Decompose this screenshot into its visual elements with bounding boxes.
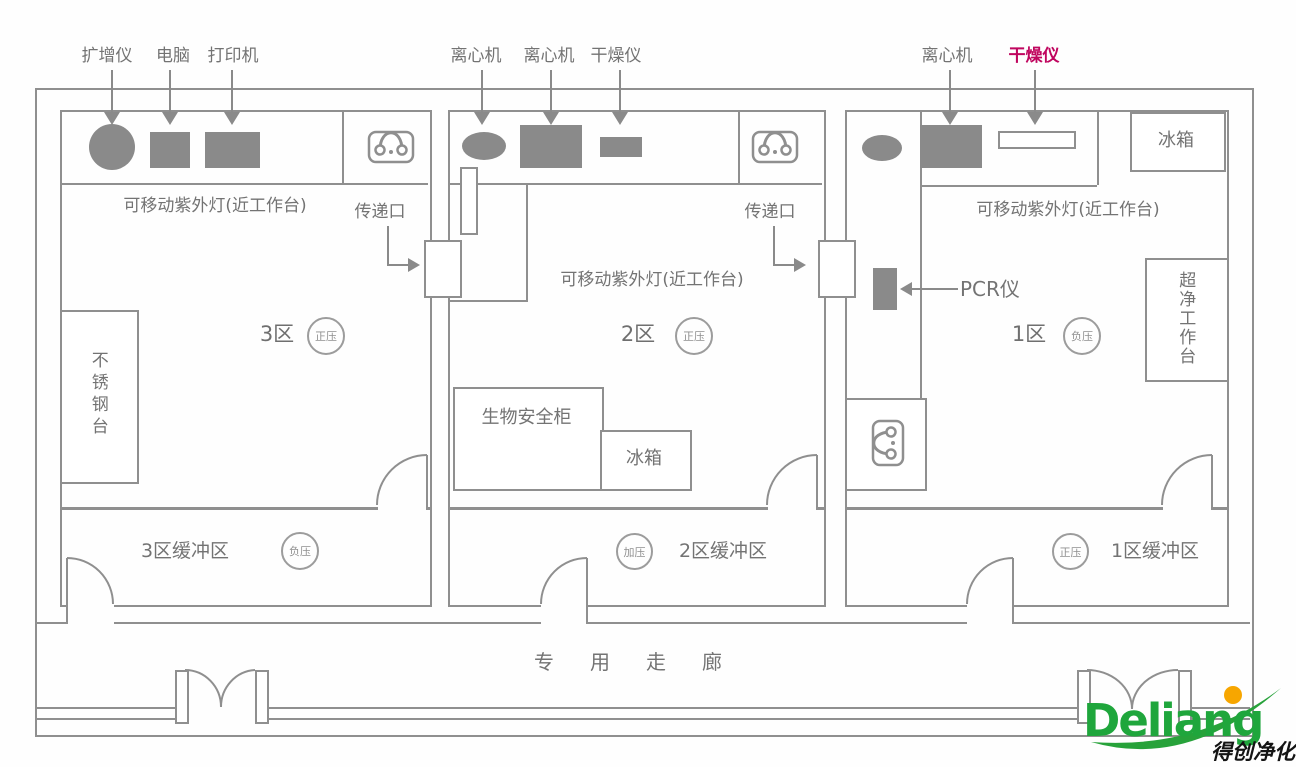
- pcr-lab-floor-plan: 可移动紫外灯(近工作台) 不锈钢台 3区 正压 传递口 可移动紫外灯(近工作台)…: [0, 0, 1296, 767]
- zone2-side-bench-h: [448, 300, 528, 302]
- zone1-fridge: 冰箱: [1130, 112, 1226, 172]
- zone1-pcr-arrowhead: [900, 282, 912, 296]
- zone3-printer: [205, 132, 260, 168]
- zone1-arrow-1: [949, 70, 951, 114]
- zone2-wall-unit: [460, 167, 478, 235]
- buffer1-door-opening: [967, 600, 1014, 626]
- zone2-centrifuge-2-label: 离心机: [519, 46, 579, 66]
- zone2-dryer-label: 干燥仪: [586, 46, 646, 66]
- zone2-centrifuge-1-label: 离心机: [446, 46, 506, 66]
- zone3-computer: [150, 132, 190, 168]
- zone1-dryer: [998, 131, 1076, 149]
- zone3-pressure-badge: 正压: [307, 317, 345, 355]
- zone3-steel-table-label: 不锈钢台: [62, 312, 133, 478]
- pass-window-2-arrowhead: [794, 258, 806, 272]
- zone2-side-bench-v: [526, 183, 528, 302]
- zone2-arrowhead-2: [543, 112, 559, 125]
- zone2-arrowhead-3: [612, 112, 628, 125]
- zone2-biosafety-cabinet: 生物安全柜: [453, 387, 604, 491]
- zone2-biosafety-cabinet-label: 生物安全柜: [455, 407, 598, 429]
- zone1-dryer-label: 干燥仪: [1004, 46, 1064, 66]
- zone2-fridge-label: 冰箱: [602, 448, 686, 470]
- zone2-bench-divider: [738, 110, 740, 183]
- zone2-arrow-3: [619, 70, 621, 114]
- pass-window-2-label: 传递口: [740, 202, 800, 222]
- zone1-bench-side: [1097, 110, 1099, 185]
- buffer3-door-opening: [67, 600, 114, 626]
- buffer2-door-opening: [541, 600, 588, 626]
- zone3-arrow-2: [169, 70, 171, 114]
- buffer2-pressure-text: 加压: [624, 544, 646, 560]
- deliang-logo: Deliang 得创净化: [1083, 680, 1295, 766]
- zone3-arrowhead-3: [224, 112, 240, 125]
- zone3-bench-edge: [60, 183, 428, 185]
- zone2-centrifuge-1: [462, 132, 506, 160]
- zone1-arrowhead-2: [1027, 112, 1043, 125]
- zone1-pcr-arrow: [912, 288, 958, 290]
- buffer3-label: 3区缓冲区: [120, 540, 250, 563]
- zone1-sink-room: [845, 398, 927, 491]
- zone1-clean-bench: 超净工作台: [1145, 258, 1229, 382]
- zone2-fridge: 冰箱: [600, 430, 692, 491]
- zone3-arrowhead-1: [104, 112, 120, 125]
- zone3-arrowhead-2: [162, 112, 178, 125]
- zone2-uv-label: 可移动紫外灯(近工作台): [532, 270, 772, 290]
- buffer1-pressure-badge: 正压: [1052, 533, 1089, 570]
- zone1-pressure-text: 负压: [1071, 328, 1093, 344]
- main-door-1-opening: [176, 705, 264, 722]
- zone3-bench-divider: [342, 110, 344, 183]
- zone3-amplifier: [89, 124, 135, 170]
- zone1-centrifuge: [920, 125, 982, 168]
- zone1-door-opening: [1163, 500, 1213, 512]
- zone3-uv-label: 可移动紫外灯(近工作台): [95, 196, 335, 216]
- buffer2-pressure-badge: 加压: [616, 533, 653, 570]
- buffer1-label: 1区缓冲区: [1090, 540, 1220, 563]
- zone2-arrow-1: [481, 70, 483, 114]
- zone1-arrowhead-1: [942, 112, 958, 125]
- zone2-door-opening: [768, 500, 818, 512]
- zone3-steel-table: 不锈钢台: [60, 310, 139, 484]
- zone1-pcr-machine: [873, 268, 897, 310]
- zone1-name: 1区: [1005, 322, 1053, 347]
- pass-window-1-arrow: [387, 226, 389, 266]
- zone2-dryer: [600, 137, 642, 157]
- main-door-1-jamb-left: [175, 670, 189, 724]
- zone2-bench-edge: [448, 183, 822, 185]
- pass-window-2-arrow-h: [775, 264, 795, 266]
- buffer3-pressure-badge: 负压: [281, 532, 319, 570]
- zone3-door-opening: [378, 500, 428, 512]
- zone2-name: 2区: [614, 322, 662, 347]
- zone3-arrow-1: [111, 70, 113, 114]
- pass-window-1-arrow-h: [389, 264, 409, 266]
- zone1-centrifuge-label: 离心机: [917, 46, 977, 66]
- zone3-printer-label: 打印机: [203, 46, 263, 66]
- zone1-pressure-badge: 负压: [1063, 317, 1101, 355]
- corridor-label: 专用走廊: [400, 650, 856, 674]
- zone1-uv-label: 可移动紫外灯(近工作台): [948, 200, 1188, 220]
- pass-window-2-arrow: [773, 226, 775, 266]
- zone1-clean-bench-label: 超净工作台: [1147, 260, 1223, 376]
- main-door-1-jamb-right: [255, 670, 269, 724]
- zone2-arrowhead-1: [474, 112, 490, 125]
- zone1-small-centrifuge: [862, 135, 902, 161]
- zone2-arrow-2: [550, 70, 552, 114]
- buffer2-label: 2区缓冲区: [658, 540, 788, 563]
- pass-window-2: [818, 240, 856, 298]
- zone1-arrow-2: [1034, 70, 1036, 114]
- zone1-pcr-label: PCR仪: [960, 277, 1040, 301]
- buffer1-pressure-text: 正压: [1060, 544, 1082, 560]
- zone3-computer-label: 电脑: [143, 46, 203, 66]
- zone1-bench-edge: [920, 185, 1097, 187]
- zone3-pressure-text: 正压: [315, 328, 337, 344]
- zone1-fridge-label: 冰箱: [1132, 130, 1220, 152]
- logo-subtitle-text: 得创净化: [1211, 736, 1295, 766]
- zone2-pressure-text: 正压: [683, 328, 705, 344]
- zone2-pressure-badge: 正压: [675, 317, 713, 355]
- zone3-arrow-3: [231, 70, 233, 114]
- zone3-name: 3区: [253, 322, 301, 347]
- zone3-amplifier-label: 扩增仪: [77, 46, 137, 66]
- pass-window-1: [424, 240, 462, 298]
- pass-window-1-arrowhead: [408, 258, 420, 272]
- corridor-top-wall: [37, 622, 1250, 624]
- buffer3-pressure-text: 负压: [289, 543, 311, 559]
- pass-window-1-label: 传递口: [350, 202, 410, 222]
- zone2-centrifuge-2: [520, 125, 582, 168]
